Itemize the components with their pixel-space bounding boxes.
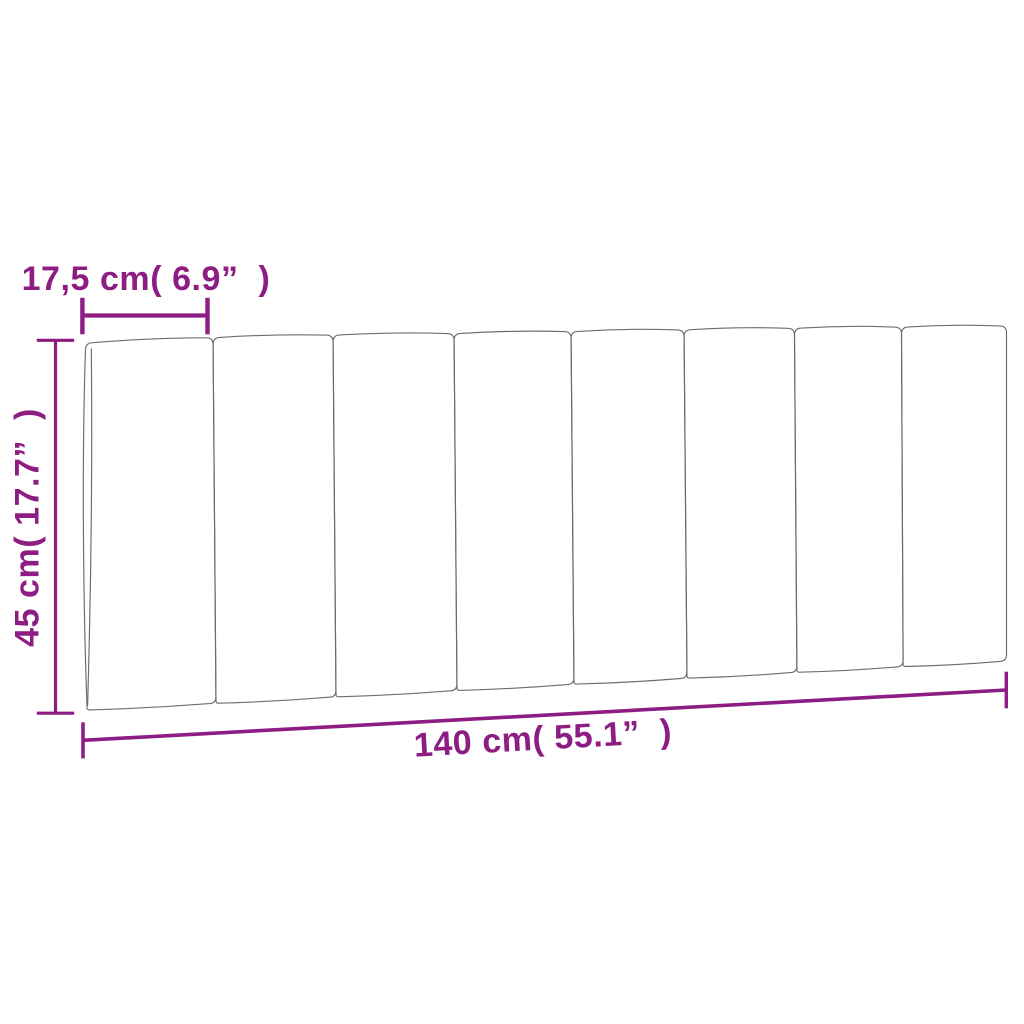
svg-text:45 cm( 17.7” ): 45 cm( 17.7” ) — [9, 408, 47, 647]
svg-text:17,5 cm( 6.9” ): 17,5 cm( 6.9” ) — [22, 260, 271, 298]
